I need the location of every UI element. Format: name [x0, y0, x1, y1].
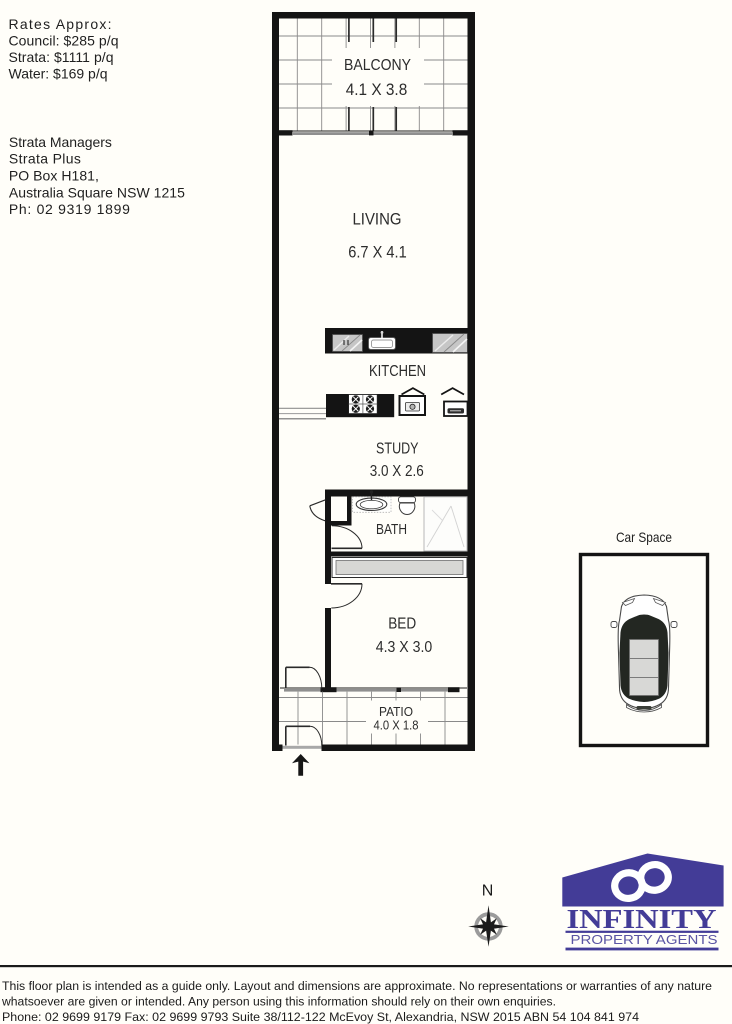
svg-text:Phone: 02 9699 9179 Fax: 02 96: Phone: 02 9699 9179 Fax: 02 9699 9793 Su…	[2, 1010, 639, 1024]
svg-text:PO Box H181,: PO Box H181,	[9, 167, 99, 183]
svg-text:Rates Approx:: Rates Approx:	[9, 16, 112, 32]
svg-text:This floor plan is intended as: This floor plan is intended as a guide o…	[2, 979, 712, 993]
svg-text:BED: BED	[388, 615, 416, 632]
svg-text:INFINITY: INFINITY	[567, 904, 717, 934]
svg-text:whatsoever are given or intend: whatsoever are given or intended. Any pe…	[1, 994, 556, 1008]
svg-text:Ph: 02 9319 1899: Ph: 02 9319 1899	[9, 201, 130, 217]
svg-text:PATIO: PATIO	[379, 705, 413, 719]
svg-text:LIVING: LIVING	[353, 211, 402, 229]
svg-text:Strata Plus: Strata Plus	[9, 151, 81, 167]
svg-text:Council: $285 p/q: Council: $285 p/q	[9, 33, 119, 49]
svg-text:PROPERTY AGENTS: PROPERTY AGENTS	[571, 932, 718, 947]
svg-text:BATH: BATH	[376, 521, 407, 538]
svg-text:4.1 X 3.8: 4.1 X 3.8	[346, 80, 408, 99]
svg-text:STUDY: STUDY	[376, 441, 419, 458]
svg-text:6.7 X 4.1: 6.7 X 4.1	[348, 242, 407, 261]
svg-text:BALCONY: BALCONY	[344, 57, 411, 74]
svg-text:4.0 X 1.8: 4.0 X 1.8	[374, 719, 419, 733]
svg-text:Strata: $1111 p/q: Strata: $1111 p/q	[9, 49, 114, 65]
svg-text:Australia Square NSW 1215: Australia Square NSW 1215	[9, 185, 185, 201]
svg-text:Water: $169 p/q: Water: $169 p/q	[9, 65, 108, 81]
svg-text:4.3 X 3.0: 4.3 X 3.0	[376, 639, 433, 656]
svg-text:N: N	[482, 883, 494, 900]
svg-text:KITCHEN: KITCHEN	[369, 363, 426, 380]
svg-text:Car Space: Car Space	[616, 529, 672, 545]
svg-text:Strata Managers: Strata Managers	[9, 134, 112, 150]
svg-text:3.0 X 2.6: 3.0 X 2.6	[370, 463, 424, 480]
